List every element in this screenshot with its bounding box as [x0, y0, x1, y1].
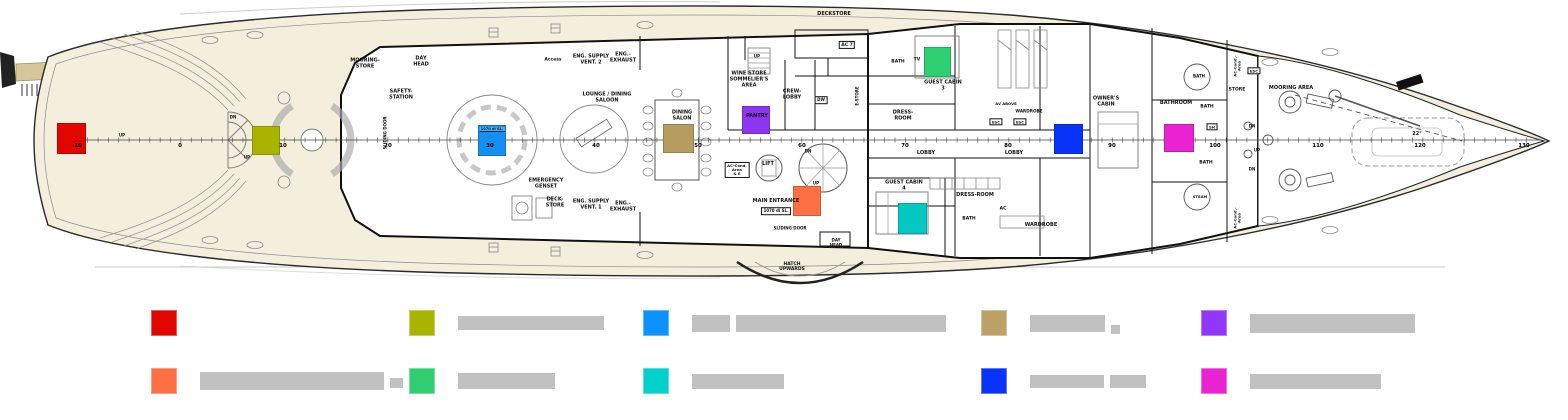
legend-label-redacted: [736, 315, 946, 332]
marker-orange-main-entrance[interactable]: [793, 186, 821, 216]
legend-orange-swatch[interactable]: [151, 368, 177, 394]
legend-teal-item[interactable]: [643, 368, 784, 394]
legend-royal-swatch[interactable]: [981, 368, 1007, 394]
marker-blue-saloon[interactable]: 1070 di SL.: [478, 125, 506, 156]
marker-teal-guest-cabin-4[interactable]: [898, 203, 927, 234]
legend-green-item[interactable]: [409, 368, 555, 394]
legend-tan-swatch[interactable]: [981, 310, 1007, 336]
legend-royal-item[interactable]: [981, 368, 1146, 394]
legend-label-redacted: [1030, 315, 1105, 332]
yacht-deck-plan-page: 1070 di SL. MOORING- STOREDAY HEADSAFETY…: [0, 0, 1568, 420]
legend-label-redacted: [458, 316, 604, 330]
legend-label-redacted: [1110, 375, 1146, 388]
legend-tan-item[interactable]: [981, 310, 1120, 336]
legend: [0, 300, 1568, 420]
marker-green-guest-cabin-3[interactable]: [924, 47, 951, 77]
marker-caption: 1070 di SL.: [480, 127, 505, 132]
legend-purple-item[interactable]: [1201, 310, 1415, 336]
marker-purple-pantry[interactable]: [742, 106, 770, 134]
legend-label-redacted: [458, 373, 555, 389]
marker-royal-owners-lobby[interactable]: [1054, 124, 1083, 154]
legend-purple-swatch[interactable]: [1201, 310, 1227, 336]
saloon-block: [341, 34, 868, 248]
marker-olive-aft-deck[interactable]: [252, 126, 280, 155]
legend-olive-swatch[interactable]: [409, 310, 435, 336]
legend-magenta-item[interactable]: [1201, 368, 1381, 394]
legend-blue-swatch[interactable]: [643, 310, 669, 336]
marker-magenta-bathroom[interactable]: [1164, 124, 1194, 152]
legend-red-swatch[interactable]: [151, 310, 177, 336]
dock-fitting: [0, 52, 16, 88]
marker-red-aft-platform[interactable]: [57, 123, 86, 154]
legend-teal-swatch[interactable]: [643, 368, 669, 394]
legend-label-redacted: [200, 372, 384, 390]
legend-label-redacted: [390, 378, 403, 388]
legend-label-redacted: [1030, 375, 1104, 388]
deck-plan-drawing: [0, 0, 1568, 300]
legend-blue-item[interactable]: [643, 310, 946, 336]
legend-label-redacted: [1250, 314, 1415, 333]
legend-label-redacted: [1250, 374, 1381, 389]
legend-label-redacted: [692, 315, 730, 332]
legend-green-swatch[interactable]: [409, 368, 435, 394]
legend-orange-item[interactable]: [151, 368, 403, 394]
legend-label-redacted: [692, 374, 784, 389]
legend-magenta-swatch[interactable]: [1201, 368, 1227, 394]
marker-tan-dining-salon[interactable]: [663, 124, 694, 153]
legend-red-item[interactable]: [151, 310, 177, 336]
legend-label-redacted: [1111, 325, 1120, 334]
legend-olive-item[interactable]: [409, 310, 604, 336]
